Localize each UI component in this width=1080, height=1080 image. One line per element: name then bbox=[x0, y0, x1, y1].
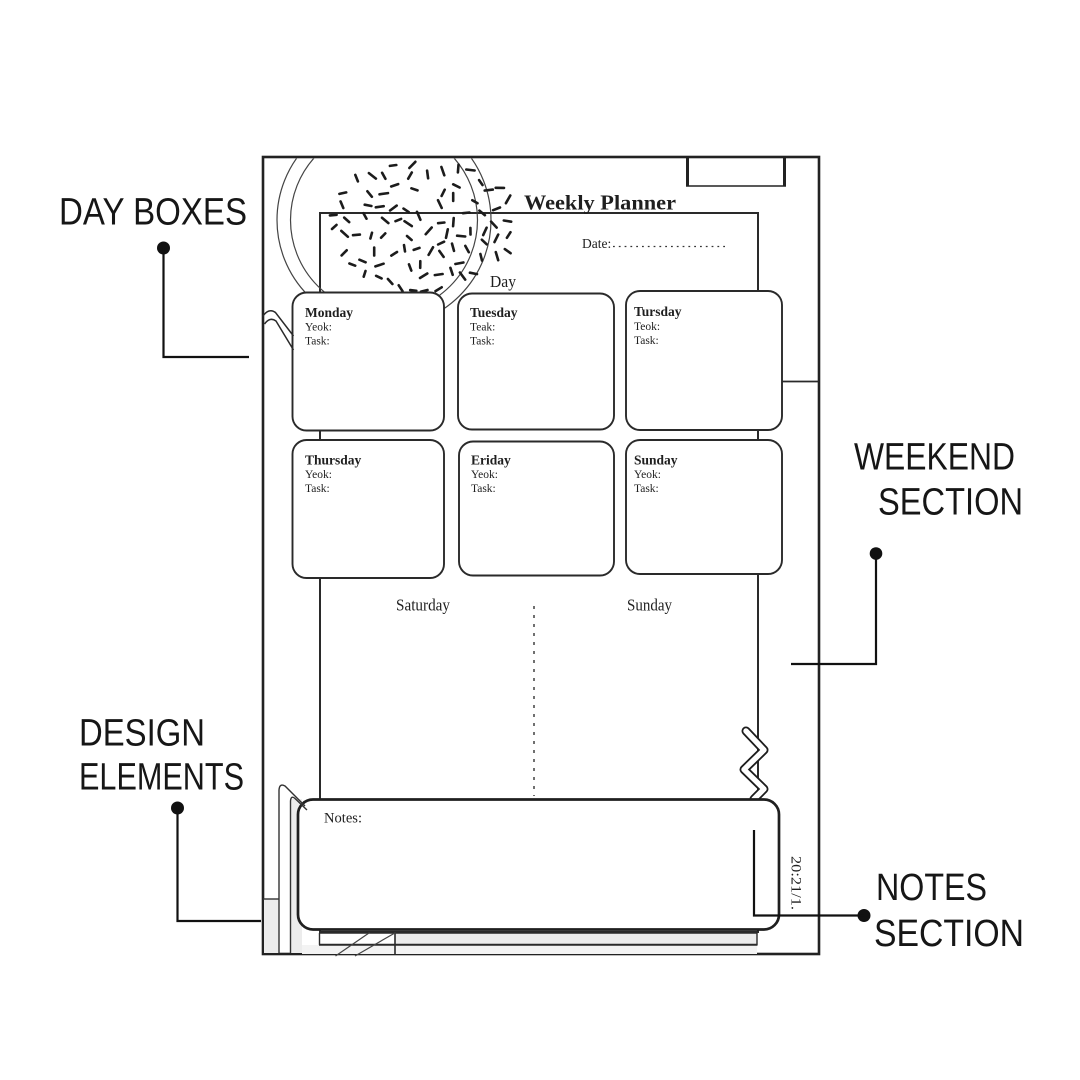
svg-text:Task:: Task: bbox=[305, 483, 330, 495]
svg-text:Task:: Task: bbox=[634, 483, 659, 495]
svg-text:SECTION: SECTION bbox=[878, 482, 1023, 524]
svg-text:Sunday: Sunday bbox=[634, 453, 678, 468]
svg-text:Tuesday: Tuesday bbox=[470, 305, 518, 320]
svg-text:20:21/1.: 20:21/1. bbox=[788, 856, 804, 910]
svg-text:Task:: Task: bbox=[305, 336, 330, 348]
svg-text:Day: Day bbox=[490, 272, 516, 291]
svg-text:Task:: Task: bbox=[634, 335, 659, 347]
svg-text:Eriday: Eriday bbox=[471, 453, 511, 468]
svg-text:Yeok:: Yeok: bbox=[305, 469, 332, 481]
svg-text:Date:: Date: bbox=[582, 236, 611, 251]
svg-text:SECTION: SECTION bbox=[874, 913, 1024, 955]
svg-text:NOTES: NOTES bbox=[876, 867, 987, 909]
svg-text:Thursday: Thursday bbox=[305, 453, 362, 468]
svg-text:Yeok:: Yeok: bbox=[305, 322, 332, 334]
svg-text:WEEKEND: WEEKEND bbox=[854, 437, 1015, 479]
svg-text:DAY BOXES: DAY BOXES bbox=[59, 192, 247, 234]
svg-text:Task:: Task: bbox=[471, 483, 496, 495]
svg-text:Sunday: Sunday bbox=[627, 596, 673, 615]
svg-text:ELEMENTS: ELEMENTS bbox=[79, 757, 244, 799]
svg-text:DESIGN: DESIGN bbox=[79, 713, 205, 755]
svg-text:Teok:: Teok: bbox=[634, 321, 660, 333]
svg-text:Monday: Monday bbox=[305, 305, 353, 320]
svg-text:Yeok:: Yeok: bbox=[471, 469, 498, 481]
svg-text:Notes:: Notes: bbox=[324, 811, 362, 827]
svg-text:Yeok:: Yeok: bbox=[634, 469, 661, 481]
svg-text:Tursday: Tursday bbox=[634, 304, 682, 319]
svg-text:Saturday: Saturday bbox=[396, 596, 451, 615]
svg-text:Weekly Planner: Weekly Planner bbox=[524, 191, 676, 215]
svg-text:Task:: Task: bbox=[470, 336, 495, 348]
svg-text:Teak:: Teak: bbox=[470, 322, 495, 334]
